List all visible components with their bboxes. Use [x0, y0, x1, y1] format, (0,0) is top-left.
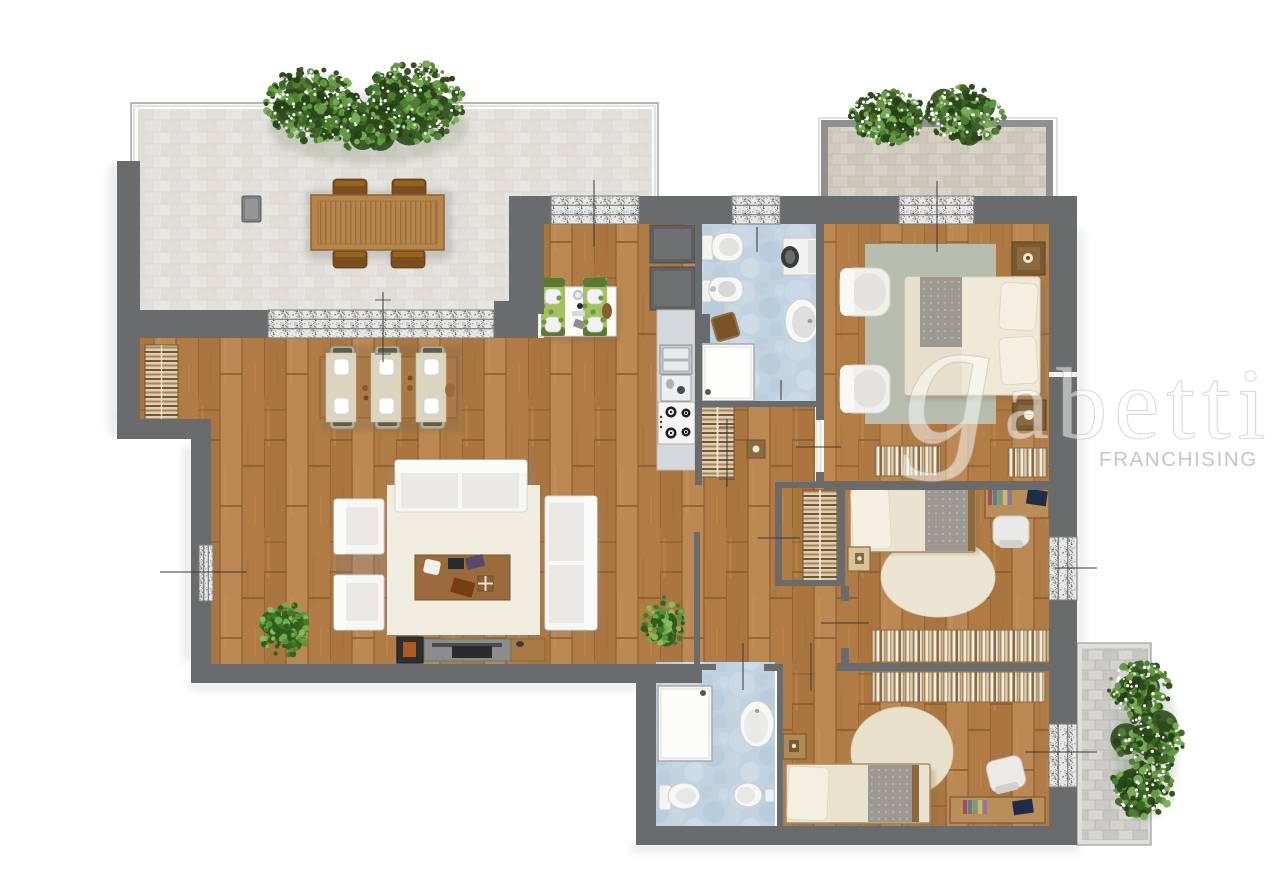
svg-text:g: g [902, 278, 995, 483]
svg-text:FRANCHISING: FRANCHISING [1099, 448, 1258, 471]
svg-text:abetti: abetti [1004, 348, 1273, 461]
